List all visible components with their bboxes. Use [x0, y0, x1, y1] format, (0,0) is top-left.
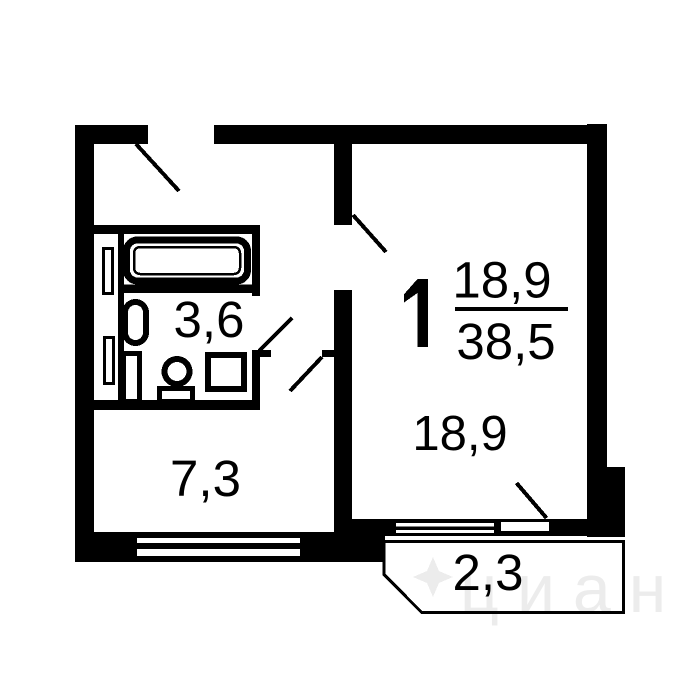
- svg-text:18,9: 18,9: [452, 252, 551, 309]
- svg-text:38,5: 38,5: [456, 313, 555, 370]
- svg-text:7,3: 7,3: [170, 450, 241, 507]
- svg-text:18,9: 18,9: [412, 407, 507, 461]
- svg-text:3,6: 3,6: [174, 291, 245, 348]
- svg-text:2,3: 2,3: [453, 544, 524, 601]
